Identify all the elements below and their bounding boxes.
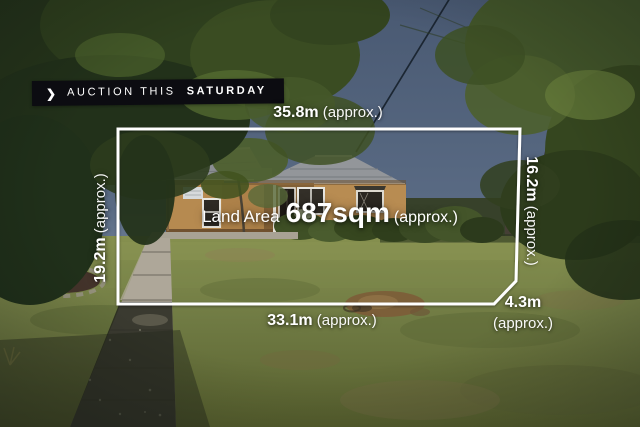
land-area-label: Land Area687sqm(approx.) [202, 197, 458, 229]
land-area-prefix: Land Area [202, 207, 280, 226]
banner-text-bold: SATURDAY [187, 86, 267, 98]
property-listing-photo: ❯ AUCTION THIS SATURDAY 35.8m (approx.) … [0, 0, 640, 427]
auction-banner: ❯ AUCTION THIS SATURDAY [32, 78, 284, 106]
measurement-top: 35.8m (approx.) [273, 104, 383, 122]
land-area-suffix: (approx.) [394, 209, 458, 226]
measurement-top-value: 35.8m [273, 104, 318, 121]
measurement-corner: 4.3m (approx.) [493, 293, 553, 333]
measurement-left: 19.2m (approx.) [92, 173, 110, 283]
measurement-left-value: 19.2m [92, 237, 109, 282]
measurement-corner-suffix: (approx.) [493, 314, 553, 334]
land-area-value: 687sqm [286, 197, 390, 228]
measurement-left-suffix: (approx.) [92, 173, 109, 233]
measurement-top-suffix: (approx.) [323, 104, 383, 121]
banner-text-regular: AUCTION THIS [67, 86, 176, 98]
measurement-right: 16.2m (approx.) [522, 156, 540, 266]
measurement-corner-value: 4.3m [493, 293, 553, 314]
measurement-right-value: 16.2m [523, 156, 540, 201]
measurement-right-suffix: (approx.) [523, 206, 540, 266]
measurement-bottom-suffix: (approx.) [317, 312, 377, 329]
chevron-right-icon: ❯ [46, 87, 56, 99]
measurement-bottom-value: 33.1m [267, 312, 312, 329]
measurement-bottom: 33.1m (approx.) [267, 312, 377, 330]
